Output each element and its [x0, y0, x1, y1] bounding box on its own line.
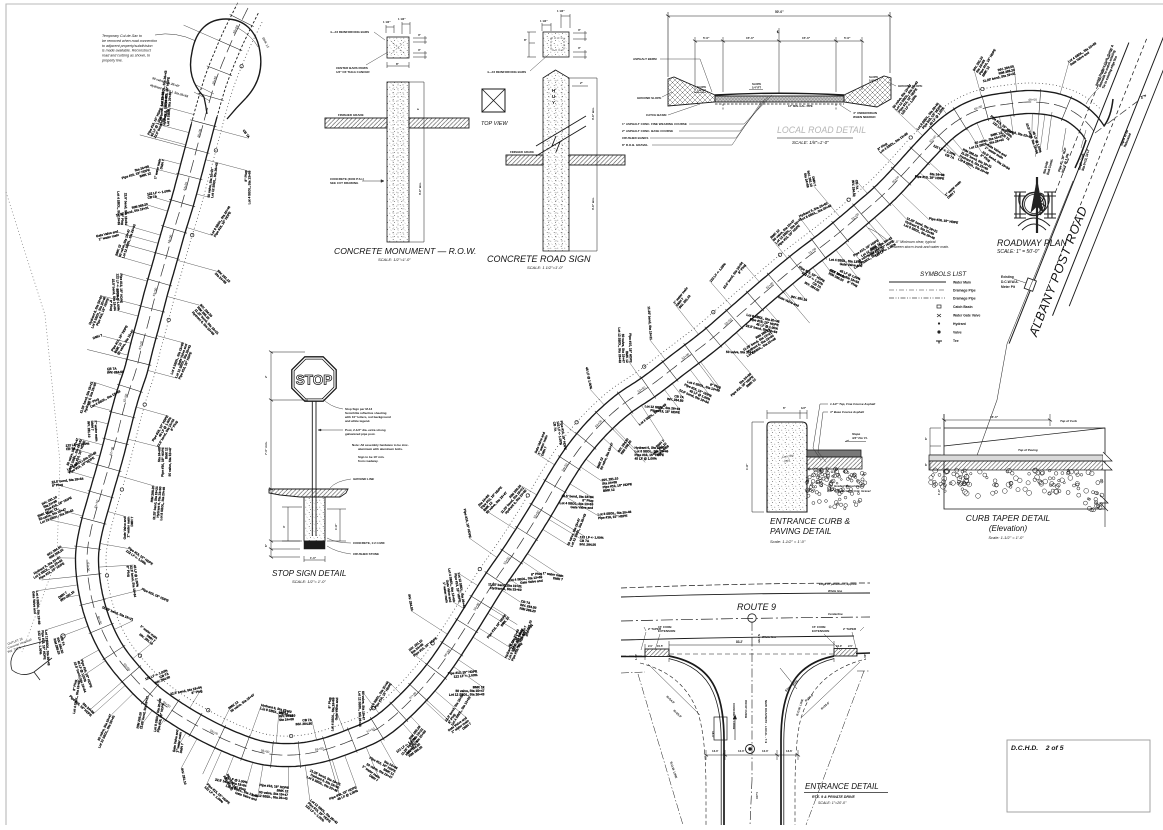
svg-text:GROUND SLOPE: GROUND SLOPE: [898, 84, 922, 88]
svg-text:65+00: 65+00: [196, 128, 202, 138]
svg-text:63+50: 63+50: [152, 287, 158, 297]
svg-text:and white legend.: and white legend.: [345, 419, 370, 423]
svg-text:1/2": 1/2": [801, 406, 807, 410]
svg-text:5'-0": 5'-0": [703, 36, 710, 40]
svg-text:1/4"/FT: 1/4"/FT: [869, 78, 878, 82]
svg-text:Meter Pit: Meter Pit: [1001, 285, 1016, 289]
svg-text:Catch Basin: Catch Basin: [953, 305, 973, 309]
svg-text:45 LF @ 1.00%: 45 LF @ 1.00%: [585, 367, 593, 390]
svg-text:R.O.W. LINE: R.O.W. LINE: [669, 761, 678, 779]
svg-text:INV. 281.10: INV. 281.10: [180, 768, 187, 785]
svg-text:CATCH BASIN: CATCH BASIN: [646, 113, 666, 117]
svg-text:SCALE: 1 1/2"=1'-0": SCALE: 1 1/2"=1'-0": [527, 265, 564, 270]
svg-text:61+50: 61+50: [93, 499, 99, 509]
svg-text:R=54.0': R=54.0': [665, 695, 676, 705]
svg-text:BMK 15: BMK 15: [261, 37, 270, 49]
svg-text:Scale: 1-1/2" = 1'-0": Scale: 1-1/2" = 1'-0": [988, 535, 1024, 540]
svg-text:1/4"/FT: 1/4"/FT: [697, 88, 706, 92]
svg-text:13.0': 13.0': [712, 749, 719, 753]
svg-text:GROUND LINE: GROUND LINE: [353, 477, 375, 481]
svg-text:58+50: 58+50: [260, 748, 270, 754]
svg-text:CONCRETE CURB: CONCRETE CURB: [732, 703, 736, 730]
svg-text:CB 7A: CB 7A: [147, 194, 158, 199]
svg-text:3'-6" min.: 3'-6" min.: [591, 197, 595, 210]
svg-text:13.6': 13.6': [786, 749, 793, 753]
svg-text:Water Gate Valve: Water Gate Valve: [953, 314, 981, 318]
svg-text:Lot 12 SBDL, Sta 26+43: Lot 12 SBDL, Sta 26+43: [357, 691, 362, 727]
svg-text:to adjacent property/subdivisi: to adjacent property/subdivision: [102, 44, 153, 48]
svg-text:ENTRANCE DETAIL: ENTRANCE DETAIL: [805, 782, 879, 791]
svg-text:3": 3": [418, 48, 422, 52]
svg-text:R=25.0': R=25.0': [672, 709, 683, 719]
svg-text:3'-6" min.: 3'-6" min.: [591, 107, 595, 120]
svg-text:3': 3': [282, 525, 286, 528]
svg-text:CRUSHED BANKS: CRUSHED BANKS: [622, 136, 648, 140]
svg-text:Sta 24+88: Sta 24+88: [279, 717, 294, 722]
svg-text:15.5': 15.5': [657, 644, 663, 648]
svg-text:1/4"/FT: 1/4"/FT: [752, 85, 761, 89]
svg-text:3'-6" min.: 3'-6" min.: [418, 182, 422, 195]
svg-text:8" R.O.B. GRAVEL: 8" R.O.B. GRAVEL: [622, 143, 648, 147]
svg-text:RTE. 9 & PRIVATE DRIVE: RTE. 9 & PRIVATE DRIVE: [812, 795, 855, 799]
svg-text:INV. 284.50: INV. 284.50: [579, 542, 596, 546]
svg-text:BMK 12: BMK 12: [603, 488, 615, 493]
svg-text:12.0': 12.0': [738, 749, 745, 753]
svg-text:GROUND SLOPE: GROUND SLOPE: [637, 96, 661, 100]
svg-text:65+50: 65+50: [211, 75, 218, 85]
svg-text:CB 7A: CB 7A: [552, 421, 557, 432]
svg-text:be removed when road connectio: be removed when road connection: [102, 39, 157, 43]
svg-text:1 1/2": 1 1/2": [540, 19, 548, 23]
svg-text:EXTENSION: EXTENSION: [812, 629, 829, 633]
svg-text:51+50: 51+50: [808, 247, 818, 256]
svg-text:DMH 7: DMH 7: [92, 333, 103, 340]
svg-text:50 valve, Sta 15+47: 50 valve, Sta 15+47: [168, 447, 172, 476]
svg-text:White line: White line: [828, 589, 842, 593]
svg-text:ENTRANCE CURB &: ENTRANCE CURB &: [770, 516, 850, 526]
svg-text:DMH 7: DMH 7: [159, 159, 165, 170]
svg-text:1 1/2": 1 1/2": [398, 17, 406, 21]
svg-text:SCALE: 1/2"=1'-0": SCALE: 1/2"=1'-0": [378, 257, 411, 262]
svg-text:64+00: 64+00: [167, 234, 173, 244]
svg-text:Hydrant: Hydrant: [953, 322, 967, 326]
svg-text:Existing: Existing: [1001, 275, 1014, 279]
svg-text:(Elevation): (Elevation): [989, 524, 1028, 533]
svg-text:50'-0": 50'-0": [775, 10, 784, 14]
svg-text:SEE CUT DRAWING: SEE CUT DRAWING: [330, 181, 359, 185]
svg-text:INV. 284.50: INV. 284.50: [407, 594, 414, 611]
svg-text:U: U: [552, 94, 555, 99]
svg-text:Gate Valve and: Gate Valve and: [31, 591, 37, 614]
svg-text:6": 6": [264, 543, 268, 547]
svg-text:Pipe #10, 18" HDPE: Pipe #10, 18" HDPE: [915, 174, 945, 180]
svg-text:Edge of pavement, approx.: Edge of pavement, approx.: [819, 582, 858, 586]
svg-text:1-1/2" Top, Fine Course Asphal: 1-1/2" Top, Fine Course Asphalt: [830, 402, 876, 406]
svg-text:3": 3": [578, 46, 582, 50]
svg-text:INV. 284.50: INV. 284.50: [107, 370, 124, 375]
svg-text:DMH 7: DMH 7: [130, 516, 134, 526]
svg-text:5'-0": 5'-0": [844, 36, 851, 40]
svg-text:SLOPE: SLOPE: [697, 85, 706, 89]
svg-text:CONCRETE, 1:2:4 MIX: CONCRETE, 1:2:4 MIX: [353, 541, 385, 545]
svg-text:1+00: 1+00: [755, 792, 759, 799]
svg-text:2" ASPHALT CONC. BASE COURSE: 2" ASPHALT CONC. BASE COURSE: [622, 129, 673, 133]
svg-text:FINISHED GRADE: FINISHED GRADE: [338, 113, 364, 117]
svg-text:DROP CURB: DROP CURB: [744, 700, 748, 719]
svg-text:8": 8": [924, 462, 928, 466]
svg-text:6": 6": [924, 436, 928, 440]
svg-text:4" Graded Gravel Base: 4" Graded Gravel Base: [829, 484, 863, 488]
svg-text:15'-0": 15'-0": [802, 36, 811, 40]
svg-text:road and curbing as shown, to: road and curbing as shown, to: [102, 54, 150, 58]
svg-text:SCALE: 1" = 50'-0": SCALE: 1" = 50'-0": [997, 249, 1039, 255]
svg-text:11.25' bend, Sta 19+21: 11.25' bend, Sta 19+21: [647, 306, 653, 340]
svg-text:50 valve, Sta 15+47: 50 valve, Sta 15+47: [599, 442, 614, 470]
svg-text:Drainage Pipe: Drainage Pipe: [953, 289, 976, 293]
svg-text:60+00: 60+00: [123, 662, 132, 671]
svg-text:3": 3": [578, 28, 582, 32]
svg-text:12.0': 12.0': [762, 749, 769, 753]
svg-text:53+50: 53+50: [637, 385, 647, 393]
svg-text:1 1/2": 1 1/2": [383, 20, 391, 24]
svg-text:Pipe #16, 15" HDPE: Pipe #16, 15" HDPE: [463, 508, 473, 538]
svg-text:1/2" OF THGA CANCER: 1/2" OF THGA CANCER: [336, 70, 370, 74]
svg-text:18.0': 18.0': [711, 731, 715, 738]
svg-text:2.0': 2.0': [648, 644, 653, 648]
svg-text:56+50: 56+50: [443, 648, 451, 658]
svg-text:INV. 281.10: INV. 281.10: [86, 421, 91, 438]
svg-text:D.C.H.D. 2 of 5: D.C.H.D. 2 of 5: [1011, 745, 1064, 752]
svg-text:SCALE: 1/8"=1'-0": SCALE: 1/8"=1'-0": [792, 140, 829, 145]
svg-text:63+00: 63+00: [138, 340, 144, 350]
svg-text:4—#3 REINFORCING BARS: 4—#3 REINFORCING BARS: [487, 70, 526, 74]
svg-text:Tee: Tee: [953, 339, 959, 343]
svg-text:12" MIN. GAL. PIPE: 12" MIN. GAL. PIPE: [788, 104, 813, 108]
svg-text:galvanized pipe post.: galvanized pipe post.: [345, 432, 376, 436]
svg-text:2.5': 2.5': [848, 644, 853, 648]
svg-text:CURB TAPER DETAIL: CURB TAPER DETAIL: [966, 513, 1051, 523]
svg-text:ASPHALT BERM: ASPHALT BERM: [633, 57, 657, 61]
svg-text:R=25.0': R=25.0': [820, 701, 831, 711]
svg-text:NEW ROADWAY - LOCAL - T-9: NEW ROADWAY - LOCAL - T-9: [764, 700, 768, 743]
svg-text:57+50: 57+50: [366, 726, 376, 733]
svg-text:White line: White line: [762, 635, 776, 639]
svg-text:50+00: 50+00: [928, 134, 937, 143]
svg-text:59+00: 59+00: [209, 729, 219, 737]
svg-text:Pipe #16, 15" HDPE: Pipe #16, 15" HDPE: [598, 514, 628, 520]
svg-text:STOP SIGN DETAIL: STOP SIGN DETAIL: [272, 569, 346, 578]
svg-text:66+00: 66+00: [232, 24, 239, 34]
svg-text:Valve: Valve: [953, 331, 962, 335]
svg-text:8" Plug: 8" Plug: [125, 566, 130, 578]
svg-text:INV. 284.50: INV. 284.50: [851, 180, 856, 197]
svg-text:SLOPE: SLOPE: [869, 75, 878, 79]
svg-text:Centerline: Centerline: [828, 612, 843, 616]
svg-text:Top of Curb: Top of Curb: [1060, 419, 1077, 423]
svg-text:8": 8": [396, 62, 400, 66]
svg-text:55+00: 55+00: [533, 509, 541, 519]
svg-text:1'-6": 1'-6": [745, 463, 749, 470]
svg-text:49+50: 49+50: [973, 104, 983, 111]
svg-text:51+00: 51+00: [851, 212, 860, 221]
svg-text:DMH 7: DMH 7: [179, 743, 185, 754]
svg-text:3" Base Course Asphalt: 3" Base Course Asphalt: [830, 410, 865, 414]
svg-text:54+50: 54+50: [561, 462, 569, 472]
svg-text:Lot 4 SBDL, Sta 13+69: Lot 4 SBDL, Sta 13+69: [247, 170, 251, 204]
svg-text:STOP: STOP: [296, 373, 333, 388]
svg-text:aluminum with aluminum bolts.: aluminum with aluminum bolts.: [358, 447, 403, 451]
svg-text:3": 3": [418, 33, 422, 37]
svg-text:STOP SIGN: STOP SIGN: [784, 679, 799, 693]
svg-text:64+50: 64+50: [182, 181, 188, 191]
svg-text:1': 1': [416, 107, 420, 110]
svg-text:Drainage Pipe: Drainage Pipe: [953, 297, 976, 301]
svg-text:SCALE: 1"=20'-0": SCALE: 1"=20'-0": [818, 801, 847, 805]
svg-text:2": 2": [580, 81, 584, 85]
svg-text:7'-0" min.: 7'-0" min.: [264, 441, 268, 455]
svg-text:SYMBOLS LIST: SYMBOLS LIST: [920, 271, 967, 278]
svg-text:is made available. Reconstruc: is made available. Reconstruct: [102, 49, 152, 53]
svg-text:PAVING DETAIL: PAVING DETAIL: [770, 526, 832, 536]
svg-text:Gate Valve and: Gate Valve and: [334, 697, 339, 720]
svg-text:INV. 284.50: INV. 284.50: [295, 722, 312, 727]
svg-text:2' TAPER: 2' TAPER: [843, 627, 857, 631]
svg-text:EXTENSION: EXTENSION: [658, 629, 675, 633]
svg-text:Pipe #16, 15" HDPE: Pipe #16, 15" HDPE: [929, 217, 959, 225]
svg-text:8" Plug: 8" Plug: [52, 483, 64, 488]
svg-text:R=54.0': R=54.0': [804, 693, 815, 703]
svg-text:DMH 7: DMH 7: [553, 576, 564, 581]
svg-text:1'-6": 1'-6": [334, 523, 338, 530]
svg-text:83.2': 83.2': [736, 640, 743, 644]
svg-text:(typ): (typ): [784, 458, 790, 463]
svg-text:60+50: 60+50: [96, 615, 103, 625]
svg-text:ROADWAY PLAN: ROADWAY PLAN: [997, 238, 1068, 248]
svg-text:49+00: 49+00: [1028, 98, 1037, 102]
svg-text:SLOPE: SLOPE: [752, 82, 761, 86]
svg-text:8": 8": [524, 38, 528, 42]
svg-text:WHEN NEEDED: WHEN NEEDED: [853, 115, 876, 119]
svg-text:Pipe #10, 18" HDPE: Pipe #10, 18" HDPE: [141, 587, 170, 603]
svg-text:Water Main: Water Main: [953, 281, 971, 285]
svg-text:122 LF <- 1.00%: 122 LF <- 1.00%: [709, 262, 727, 283]
svg-text:Pipe #10, 18" HDPE: Pipe #10, 18" HDPE: [486, 613, 507, 639]
svg-text:Lot 4 SBDL, Sta 13+69: Lot 4 SBDL, Sta 13+69: [1067, 41, 1097, 63]
svg-text:11.25' bend, Sta 19+21: 11.25' bend, Sta 19+21: [101, 605, 134, 622]
svg-text:Scale: 1-1/2" = 1'-0": Scale: 1-1/2" = 1'-0": [770, 539, 806, 544]
svg-text:Lot 12 SBDL, Sta 26+43: Lot 12 SBDL, Sta 26+43: [617, 327, 622, 363]
svg-text:1.50': 1.50': [634, 654, 638, 660]
svg-text:FINISHED GRADE: FINISHED GRADE: [510, 150, 534, 154]
svg-text:INV. 284.50: INV. 284.50: [667, 397, 684, 403]
svg-text:CRUSHED STONE: CRUSHED STONE: [353, 552, 379, 556]
svg-text:End Const.: End Const.: [1046, 158, 1054, 175]
svg-text:62+00: 62+00: [109, 446, 115, 456]
svg-text:Lot 8 SBDL, Sta 20+46: Lot 8 SBDL, Sta 20+46: [368, 680, 390, 711]
svg-text:ROUTE 9: ROUTE 9: [737, 602, 776, 612]
svg-text:property line.: property line.: [101, 59, 123, 63]
svg-text:16.0': 16.0': [836, 644, 842, 648]
svg-text:Hydrant 6, Sta 23+60: Hydrant 6, Sta 23+60: [490, 586, 522, 592]
svg-text:Lot 12 SBDL, Sta 26+43: Lot 12 SBDL, Sta 26+43: [449, 692, 485, 696]
svg-text:45 LF @ 1.00%: 45 LF @ 1.00%: [635, 457, 657, 461]
svg-text:1" ASPHALT CONC. FINE WEARING: 1" ASPHALT CONC. FINE WEARING COURSE: [622, 122, 687, 126]
svg-text:1.50': 1.50': [863, 654, 867, 660]
svg-text:Gate Valve and: Gate Valve and: [570, 505, 593, 510]
svg-text:D.C.W.W.A.: D.C.W.W.A.: [1001, 280, 1019, 284]
svg-text:H: H: [552, 88, 555, 93]
svg-text:15'-0": 15'-0": [746, 36, 755, 40]
svg-text:Lot 8 SBDL, Sta 20+46: Lot 8 SBDL, Sta 20+46: [210, 205, 232, 236]
svg-text:8" Plug: 8" Plug: [109, 300, 114, 311]
svg-text:55+50: 55+50: [503, 556, 511, 566]
svg-text:1'-6": 1'-6": [937, 488, 941, 495]
svg-text:Gate Valve and: Gate Valve and: [520, 579, 543, 585]
svg-text:10'-0" Minimum clear, typical: 10'-0" Minimum clear, typical: [890, 240, 936, 244]
svg-text:16'-0": 16'-0": [990, 415, 999, 419]
svg-text:LOCAL ROAD DETAIL: LOCAL ROAD DETAIL: [777, 125, 866, 135]
svg-text:TOP VIEW: TOP VIEW: [481, 121, 508, 127]
svg-text:62+50: 62+50: [122, 393, 128, 403]
svg-text:from roadway.: from roadway.: [358, 459, 378, 463]
svg-text:6": 6": [783, 406, 787, 410]
svg-text:8" Compacted R.O.B. Gravel: 8" Compacted R.O.B. Gravel: [830, 489, 871, 493]
svg-text:CONCRETE MONUMENT — R.O.W.: CONCRETE MONUMENT — R.O.W.: [334, 246, 476, 256]
svg-text:CONCRETE ROAD SIGN: CONCRETE ROAD SIGN: [487, 254, 591, 264]
svg-text:4—#3 REINFORCING BARS: 4—#3 REINFORCING BARS: [330, 30, 369, 34]
svg-text:Lot 4 SBDL, Sta 13+69: Lot 4 SBDL, Sta 13+69: [116, 191, 121, 225]
svg-text:54+00: 54+00: [594, 419, 603, 428]
svg-text:58+00: 58+00: [315, 746, 325, 752]
svg-text:1 1/2": 1 1/2": [557, 9, 565, 13]
svg-text:Top of Paving: Top of Paving: [1018, 448, 1038, 452]
svg-text:R.O.W. LINE: R.O.W. LINE: [795, 699, 804, 717]
svg-text:50+50: 50+50: [891, 175, 900, 184]
svg-text:Y: Y: [552, 100, 555, 105]
svg-text:57+00: 57+00: [408, 691, 417, 700]
svg-text:122 LF <- 1.00%: 122 LF <- 1.00%: [454, 673, 478, 679]
svg-text:56+00: 56+00: [473, 602, 481, 612]
svg-text:1'-0": 1'-0": [310, 556, 317, 560]
svg-text:3/4" Per Ft.: 3/4" Per Ft.: [852, 436, 868, 440]
svg-text:SCALE: 1/2"= 1'-0": SCALE: 1/2"= 1'-0": [292, 579, 326, 584]
svg-text:Temporary Cul-de-Sac to: Temporary Cul-de-Sac to: [102, 34, 142, 38]
svg-text:℄: ℄: [776, 29, 780, 34]
svg-text:between storm trunk and water: between storm trunk and water main.: [890, 245, 949, 249]
svg-text:61+00: 61+00: [86, 562, 90, 571]
svg-text:N 1°05': N 1°05': [757, 634, 761, 644]
svg-text:2': 2': [264, 375, 268, 378]
